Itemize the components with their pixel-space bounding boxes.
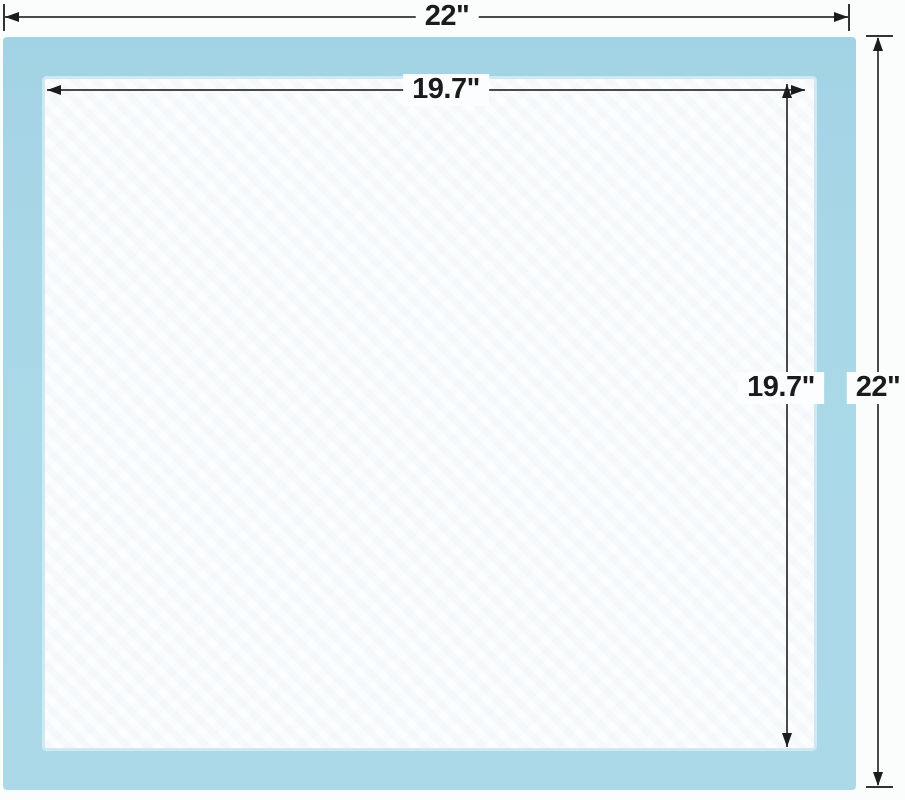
outer-height-label: 22" [847,372,905,404]
inner-height-line [786,84,788,747]
inner-width-arrow-right [791,85,805,95]
outer-width-right-tick [848,4,850,31]
outer-width-arrow-right [834,12,848,22]
pad-blue-border [3,37,856,790]
outer-width-label: 22" [416,1,479,33]
outer-height-arrow-down [873,772,883,786]
inner-width-label: 19.7" [403,74,489,106]
pad-inner-absorbent-area [45,79,814,748]
outer-height-bottom-tick [866,786,893,788]
product-dimension-diagram: 22" 19.7" 19.7" 22" [0,0,905,800]
inner-height-arrow-down [782,733,792,747]
inner-height-label: 19.7" [738,372,824,404]
outer-height-arrow-up [873,37,883,51]
outer-width-arrow-left [5,12,19,22]
inner-height-arrow-up [782,84,792,98]
inner-width-arrow-left [47,85,61,95]
outer-height-line [877,38,879,785]
